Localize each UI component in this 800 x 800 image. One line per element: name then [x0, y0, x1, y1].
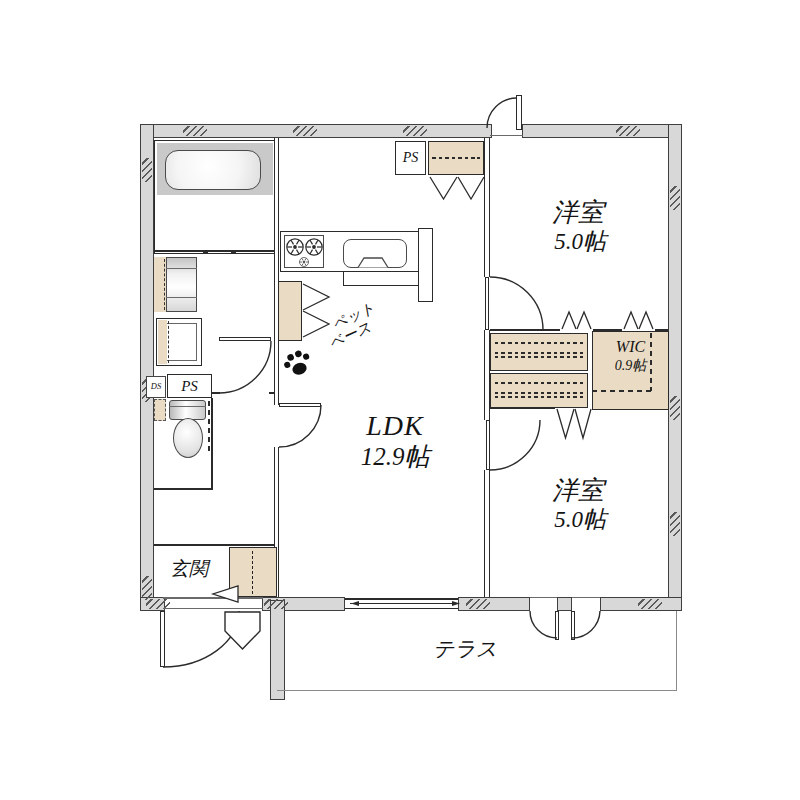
partition-ldk-west-upper: [274, 138, 279, 405]
toilet-tank-line: [169, 406, 206, 407]
wall-hatch: [466, 599, 490, 609]
divider-bedrooms-a: [484, 138, 490, 277]
toilet-side-strip: [154, 399, 166, 421]
wall-top-right: [522, 124, 682, 138]
wall-hatch: [142, 158, 152, 182]
washroom-door-jamb: [211, 392, 220, 394]
toilet-bowl: [173, 418, 203, 458]
entrance-door-panel: [225, 612, 260, 649]
wall-bottom-pier: [557, 597, 572, 611]
terrace-door2-leaf: [571, 611, 575, 640]
bathroom-door-track: [154, 250, 277, 252]
kitchen-storage-fold-door: [303, 284, 329, 310]
room-label-bedroom-top-name: 洋室: [518, 198, 638, 227]
genkan-divider: [154, 544, 275, 546]
top-closet-fold-door: [458, 177, 484, 199]
top-closet-fold-door: [430, 177, 457, 199]
closet-pipe-dash: [495, 392, 583, 394]
vanity-dash: [168, 321, 169, 363]
threshold-line: [163, 608, 263, 609]
threshold-line: [163, 597, 263, 599]
bedroom-top-door-arc: [490, 277, 543, 330]
kitchen-sink: [343, 239, 407, 268]
wall-hatch: [403, 126, 427, 136]
toilet-room-wall-right: [211, 398, 213, 490]
top-closet-dash: [432, 157, 480, 159]
sliding-window-frame-top: [345, 598, 458, 600]
bedroom-bottom-door-arc: [490, 420, 540, 470]
closet-pipe-dash: [495, 352, 583, 354]
toilet-door-dash: [208, 401, 210, 451]
pet-base-label: ペット ベース: [302, 293, 397, 359]
room-label-bedroom-top-size: 5.0帖: [520, 229, 640, 255]
counter-cabinet-front: [343, 271, 420, 286]
washroom-door-leaf: [219, 337, 271, 341]
top-exterior-door-leaf: [516, 95, 522, 130]
closet-pipe-dash: [495, 396, 583, 398]
door-track-stop: [231, 250, 236, 254]
washing-machine: [166, 257, 197, 312]
entrance-door-arc: [163, 611, 239, 667]
wall-hatch: [183, 126, 207, 136]
hall-ldk-door-arc: [279, 405, 321, 447]
kitchen-tall-storage: [278, 281, 302, 341]
room-label-wic-name: WIC: [592, 338, 669, 356]
wic-dash-h: [592, 390, 652, 392]
divider-bedrooms-c: [484, 470, 490, 597]
shoe-cabinet-dash: [252, 551, 253, 594]
wall-left: [140, 124, 154, 611]
sliding-window-frame-bottom: [345, 608, 458, 610]
door-track-stop: [203, 250, 208, 254]
wall-hatch: [142, 576, 152, 600]
room-label-ldk-name: LDK: [330, 410, 460, 441]
vanity-side-strip: [158, 320, 167, 364]
closet-dash: [495, 382, 583, 384]
bedroom-top-door-leaf: [485, 277, 489, 330]
ps-box-top: PS: [395, 141, 426, 175]
room-label-terrace: テラス: [400, 638, 530, 662]
toilet-room-wall-bottom: [154, 488, 213, 490]
room-label-entrance: 玄関: [148, 558, 230, 579]
threshold-line: [530, 597, 557, 598]
washer-detail-line: [166, 268, 197, 269]
wall-hatch: [670, 512, 680, 536]
wall-hatch: [670, 396, 680, 420]
sliding-window-track: [350, 603, 453, 604]
room-label-bedroom-bottom-name: 洋室: [518, 476, 638, 505]
wall-hatch: [264, 599, 288, 609]
entrance-door-leaf: [160, 611, 165, 667]
room-label-ldk-size: 12.9帖: [320, 443, 470, 471]
closet-lower-fold-door: [557, 409, 574, 438]
wall-hatch: [616, 126, 640, 136]
ps-toilet-label: PS: [181, 378, 198, 395]
closet-dash: [495, 342, 583, 344]
shoe-cabinet: [229, 547, 277, 597]
closet-lower: [490, 373, 588, 408]
ds-label: DS: [151, 382, 161, 392]
ps-box-toilet: PS: [167, 374, 212, 398]
bedroom-bottom-door-leaf: [486, 420, 490, 470]
threshold-line: [490, 135, 523, 136]
wall-hatch: [638, 599, 662, 609]
washer-panel-dash: [164, 259, 165, 310]
toilet-tank: [169, 400, 206, 420]
counter-side-panel: [418, 228, 433, 302]
ps-top-label: PS: [403, 150, 419, 166]
stove: [284, 235, 324, 268]
threshold-line: [572, 597, 600, 598]
room-label-wic-size: 0.9帖: [592, 358, 669, 374]
room-label-bedroom-bottom-size: 5.0帖: [520, 507, 640, 533]
hall-ldk-door-leaf: [279, 403, 321, 407]
wall-hatch: [670, 186, 680, 210]
ds-box: DS: [146, 376, 166, 398]
washer-detail-line: [166, 297, 197, 298]
floorplan-canvas: PS DS PS: [0, 0, 800, 800]
bathtub: [165, 150, 261, 190]
wall-hatch: [293, 126, 317, 136]
closet-pipe-dash: [495, 356, 583, 358]
terrace-door1-leaf: [555, 611, 559, 640]
washroom-door-arc: [219, 341, 271, 393]
closet-lower-fold-door: [575, 409, 591, 438]
